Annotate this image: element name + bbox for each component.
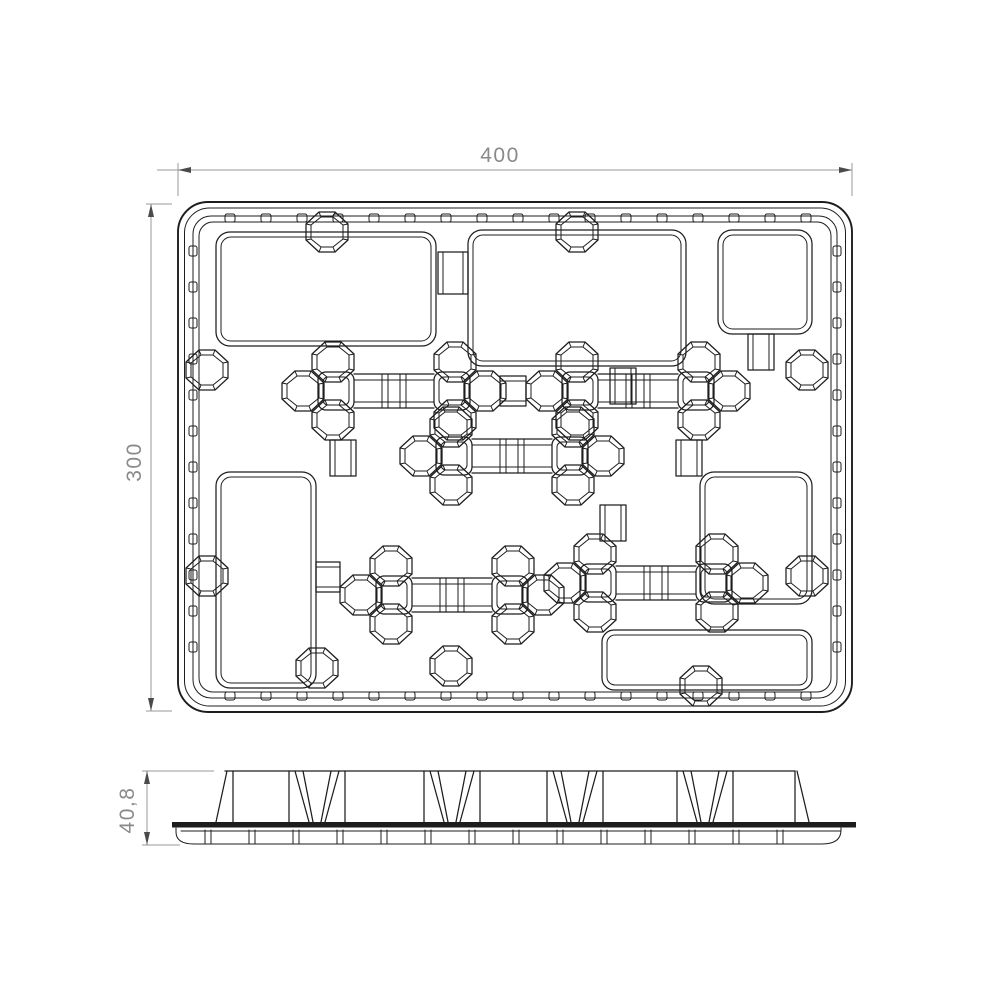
pocket-rect <box>216 230 812 690</box>
dimension-height-label: 300 <box>123 442 146 482</box>
technical-drawing: 400 300 40,8 <box>0 0 1000 1000</box>
drawing-canvas: 400 300 40,8 <box>0 0 1000 1000</box>
dimension-height: 300 <box>123 204 172 711</box>
dimension-thickness-label: 40,8 <box>116 787 139 834</box>
pocket-bones <box>282 342 768 644</box>
denest-ticks <box>189 214 841 700</box>
side-profile <box>216 771 809 822</box>
side-view <box>172 771 856 844</box>
top-view <box>178 202 852 712</box>
cavity-pockets <box>186 212 828 706</box>
underside <box>176 828 841 844</box>
flange-line <box>172 822 856 828</box>
dimension-thickness: 40,8 <box>116 771 214 845</box>
dimension-width: 400 <box>157 144 852 196</box>
dimension-width-label: 400 <box>480 144 520 167</box>
edge-knobs <box>186 212 828 706</box>
